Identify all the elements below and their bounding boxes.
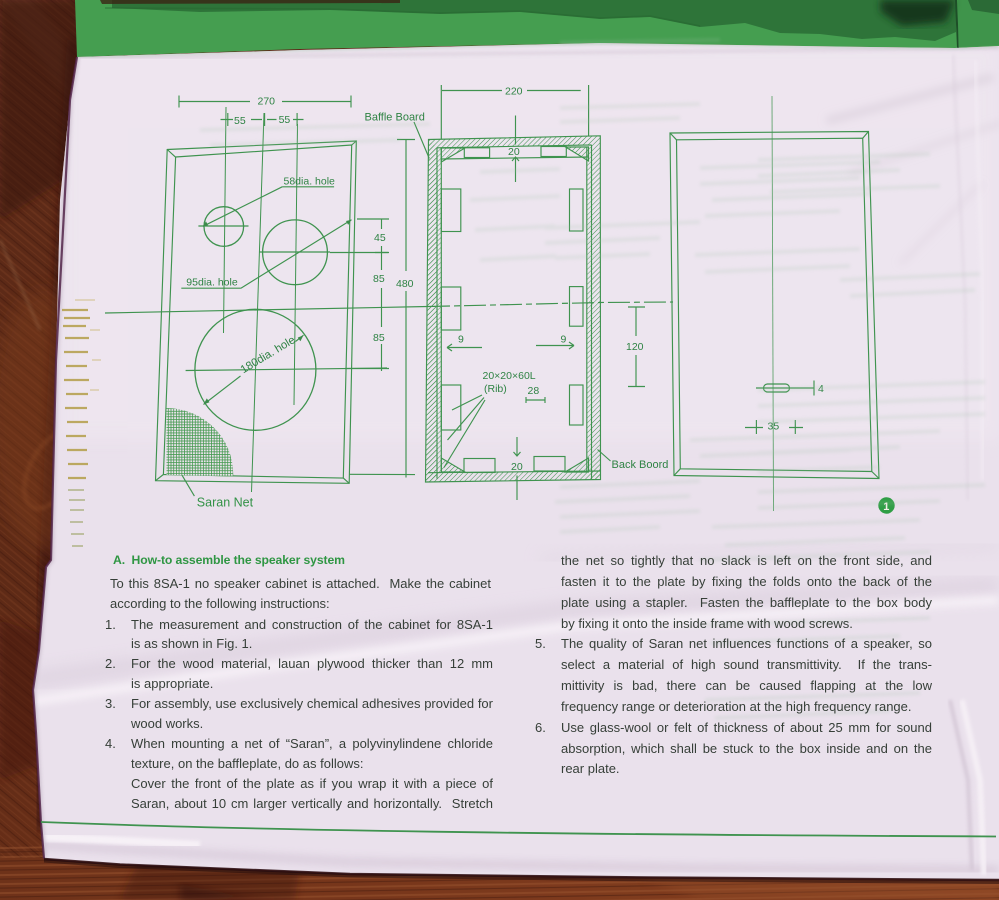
svg-text:120: 120 <box>626 341 644 353</box>
svg-text:28: 28 <box>528 385 540 397</box>
svg-text:85: 85 <box>373 332 385 344</box>
svg-text:9: 9 <box>561 334 567 346</box>
svg-text:Baffle Board: Baffle Board <box>365 112 425 124</box>
svg-text:85: 85 <box>373 273 385 285</box>
svg-text:Saran Net: Saran Net <box>197 496 254 510</box>
svg-text:220: 220 <box>505 86 523 98</box>
svg-text:(Rib): (Rib) <box>484 383 507 395</box>
svg-text:58dia. hole: 58dia. hole <box>284 176 336 188</box>
svg-text:9: 9 <box>458 334 464 346</box>
svg-text:270: 270 <box>258 96 276 108</box>
svg-text:95dia. hole: 95dia. hole <box>186 277 238 289</box>
svg-text:20×20×60L: 20×20×60L <box>483 370 536 382</box>
svg-text:45: 45 <box>374 232 386 244</box>
svg-text:20: 20 <box>511 461 523 473</box>
svg-text:20: 20 <box>508 146 520 158</box>
svg-text:480: 480 <box>396 278 414 290</box>
svg-text:55: 55 <box>234 115 246 127</box>
svg-text:55: 55 <box>279 114 291 126</box>
svg-text:Back Boord: Back Boord <box>612 459 669 471</box>
